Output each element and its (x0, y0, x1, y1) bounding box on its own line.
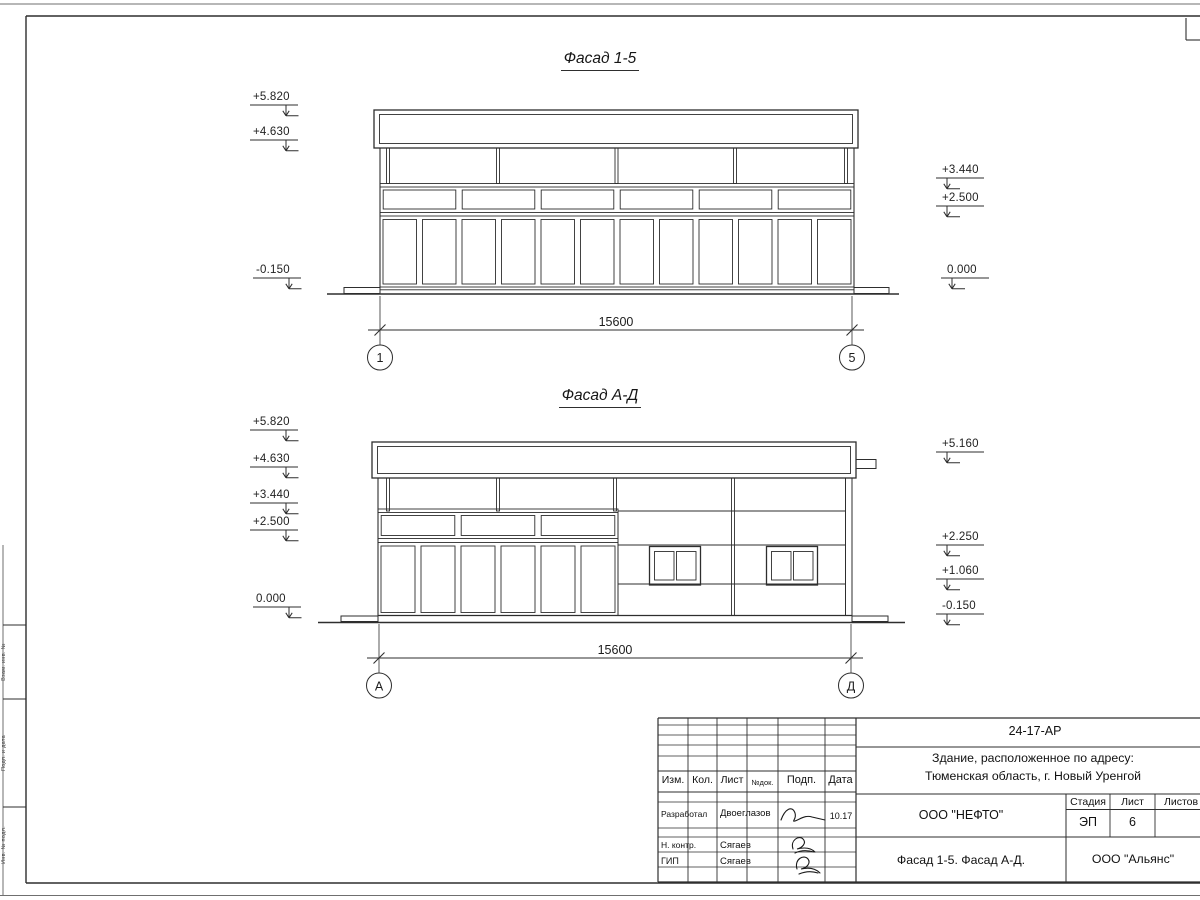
tb-col-list: Лист (717, 774, 747, 786)
tb-name-gip: Сягаев (720, 856, 751, 867)
axis-bubble-label: 1 (377, 351, 384, 365)
elevation-mark: +5.820 (250, 416, 302, 445)
f2-gutter-outlet (856, 460, 876, 469)
elevation-arrow-icon (936, 178, 984, 189)
tb-name-developer: Двоеглазов (720, 808, 771, 819)
tb-col-data: Дата (825, 774, 856, 786)
facade-bottom-title: Фасад А-Д (490, 387, 710, 408)
elevation-value: +2.250 (942, 531, 979, 544)
elevation-mark-symbol (250, 139, 302, 154)
drawing-sheet: 156001515600АД Фасад 1-5 Фасад А-Д +5.82… (0, 0, 1200, 900)
elevation-mark-symbol (935, 578, 987, 593)
signature-scribble (792, 838, 815, 853)
tb-role-ncontrol: Н. контр. (661, 840, 696, 850)
elevation-mark-symbol (250, 429, 302, 444)
f1-transom-panel (620, 190, 693, 209)
elevation-arrow-icon (253, 278, 302, 289)
f2-plinth (852, 616, 888, 622)
f1-signband-inner (380, 115, 853, 144)
elevation-mark: +4.630 (250, 126, 302, 155)
elevation-value: +5.820 (253, 91, 290, 104)
f2-fascia-post (614, 478, 617, 511)
elevation-arrow-icon (936, 206, 984, 217)
elevation-mark-symbol (253, 277, 305, 292)
f1-fascia-post (497, 148, 500, 184)
f1-transom-panel (699, 190, 772, 209)
tb-stage-label: Стадия (1066, 796, 1110, 808)
elevation-mark: 0.000 (940, 264, 992, 293)
f1-glazing-panel (502, 220, 536, 285)
f1-glazing-panel (660, 220, 694, 285)
elevation-mark: +5.820 (250, 91, 302, 120)
margin-stamp-label: Взам. инв. № (1, 627, 13, 697)
f2-glazing-panel (581, 546, 615, 613)
elevation-mark: +2.500 (935, 192, 987, 221)
f1-dimension-label: 15600 (599, 315, 634, 329)
tb-col-ndok: №док. (747, 778, 778, 787)
f2-fascia-post (497, 478, 500, 511)
elevation-arrow-icon (936, 545, 984, 556)
elevation-arrow-icon (253, 607, 302, 618)
f2-window-pane (655, 552, 675, 581)
elevation-value: 0.000 (947, 264, 977, 277)
f2-plinth (341, 616, 378, 622)
elevation-arrow-icon (250, 530, 299, 541)
signature-scribble (781, 809, 825, 821)
f1-rail (380, 213, 854, 217)
elevation-mark: -0.150 (935, 600, 987, 629)
f2-fascia-post (387, 478, 390, 511)
f2-signband-inner (378, 447, 851, 474)
elevation-mark-symbol (940, 277, 992, 292)
f2-window (767, 547, 818, 586)
f2-window (650, 547, 701, 586)
f2-glazing-panel (381, 546, 415, 613)
f2-glazing-panel (421, 546, 455, 613)
f1-transom-panel (462, 190, 535, 209)
f1-transom-panel (778, 190, 851, 209)
f1-fascia-post (615, 148, 618, 184)
tb-name-ncontrol: Сягаев (720, 840, 751, 851)
elevation-mark: +2.250 (935, 531, 987, 560)
f1-transom-panel (541, 190, 614, 209)
f1-base-rail (380, 287, 854, 290)
elevation-mark: +3.440 (935, 164, 987, 193)
elevation-arrow-icon (936, 452, 984, 463)
elevation-value: +5.820 (253, 416, 290, 429)
elevation-value: -0.150 (256, 264, 290, 277)
elevation-mark-symbol (250, 104, 302, 119)
tb-sheet-title: Фасад 1-5. Фасад А-Д. (858, 853, 1064, 867)
elevation-value: +2.500 (942, 192, 979, 205)
elevation-mark: +2.500 (250, 516, 302, 545)
tb-role-gip: ГИП (661, 856, 679, 866)
f1-glazing-panel (699, 220, 733, 285)
signature-scribble (796, 857, 820, 874)
f1-fascia-post (845, 148, 848, 184)
elevation-value: +4.630 (253, 453, 290, 466)
elevation-value: +3.440 (942, 164, 979, 177)
f1-glazing-panel (739, 220, 773, 285)
elevation-mark: +5.160 (935, 438, 987, 467)
elevation-mark-symbol (935, 451, 987, 466)
f1-fascia-post (734, 148, 737, 184)
elevation-mark: +3.440 (250, 489, 302, 518)
tb-col-podp: Подп. (778, 774, 825, 786)
elevation-mark-symbol (935, 544, 987, 559)
margin-stamp-label: Инв. № подл. (1, 810, 13, 880)
f2-rail (378, 539, 618, 543)
f1-glazing-panel (778, 220, 812, 285)
f1-glazing-panel (581, 220, 615, 285)
f1-glazing-panel (462, 220, 496, 285)
elevation-arrow-icon (250, 140, 299, 151)
f1-plinth (854, 288, 889, 294)
elevation-mark: -0.150 (253, 264, 305, 293)
f2-transom-panel (381, 516, 455, 536)
f2-transom-panel (541, 516, 615, 536)
f2-transom-panel (461, 516, 535, 536)
elevation-mark: +1.060 (935, 565, 987, 594)
drawing-canvas: 156001515600АД (0, 0, 1200, 900)
elevation-value: +4.630 (253, 126, 290, 139)
f1-glazing-panel (818, 220, 852, 285)
axis-bubble-label: А (375, 680, 384, 694)
f2-dimension-label: 15600 (598, 643, 633, 657)
tb-project-line2: Тюменская область, г. Новый Уренгой (866, 769, 1200, 783)
tb-sheet-label: Лист (1110, 796, 1155, 808)
axis-bubble-label: Д (847, 680, 856, 694)
facade-top-title: Фасад 1-5 (490, 50, 710, 71)
elevation-mark-symbol (250, 502, 302, 517)
f2-wall-post (732, 478, 735, 616)
elevation-mark: 0.000 (253, 593, 305, 622)
elevation-value: 0.000 (256, 593, 286, 606)
elevation-arrow-icon (250, 503, 299, 514)
tb-company: ООО "Альянс" (1066, 852, 1200, 866)
tb-customer: ООО "НЕФТО" (858, 808, 1064, 822)
f1-plinth (344, 288, 380, 294)
f1-glazing-panel (423, 220, 457, 285)
f1-transom-panel (383, 190, 456, 209)
elevation-value: +2.500 (253, 516, 290, 529)
axis-bubble-label: 5 (849, 351, 856, 365)
tb-role-developer: Разработал (661, 809, 707, 819)
f2-corner-post (846, 478, 853, 616)
f1-rail (380, 184, 854, 188)
f1-glazing-panel (541, 220, 575, 285)
elevation-arrow-icon (936, 579, 984, 590)
f1-glazing-panel (383, 220, 417, 285)
elevation-mark: +4.630 (250, 453, 302, 482)
tb-col-izm: Изм. (658, 774, 688, 786)
tb-sheets-label: Листов (1155, 796, 1200, 808)
elevation-mark-symbol (250, 529, 302, 544)
tb-sheet-value: 6 (1110, 815, 1155, 829)
tb-date-developer: 10.17 (826, 811, 856, 821)
elevation-arrow-icon (250, 430, 299, 441)
tb-doc-number: 24-17-АР (880, 724, 1190, 738)
elevation-value: +3.440 (253, 489, 290, 502)
elevation-mark-symbol (935, 205, 987, 220)
tb-stage-value: ЭП (1066, 815, 1110, 829)
margin-stamp-label: Подп. и дата (1, 718, 13, 788)
f2-glazing-panel (541, 546, 575, 613)
f2-glazing-panel (501, 546, 535, 613)
elevation-mark-symbol (250, 466, 302, 481)
elevation-value: -0.150 (942, 600, 976, 613)
f1-signband (374, 110, 858, 148)
f1-fascia-post (387, 148, 390, 184)
elevation-arrow-icon (250, 105, 299, 116)
elevation-mark-symbol (253, 606, 305, 621)
tb-project-line1: Здание, расположенное по адресу: (866, 751, 1200, 765)
f2-window-pane (677, 552, 697, 581)
elevation-arrow-icon (936, 614, 984, 625)
f2-window-pane (794, 552, 814, 581)
elevation-value: +1.060 (942, 565, 979, 578)
elevation-mark-symbol (935, 613, 987, 628)
f1-glazing-panel (620, 220, 654, 285)
tb-col-kol: Кол. (688, 774, 717, 786)
f2-signband (372, 442, 856, 478)
f2-glazing-panel (461, 546, 495, 613)
elevation-arrow-icon (941, 278, 989, 289)
f2-window-pane (772, 552, 792, 581)
elevation-value: +5.160 (942, 438, 979, 451)
elevation-arrow-icon (250, 467, 299, 478)
elevation-mark-symbol (935, 177, 987, 192)
